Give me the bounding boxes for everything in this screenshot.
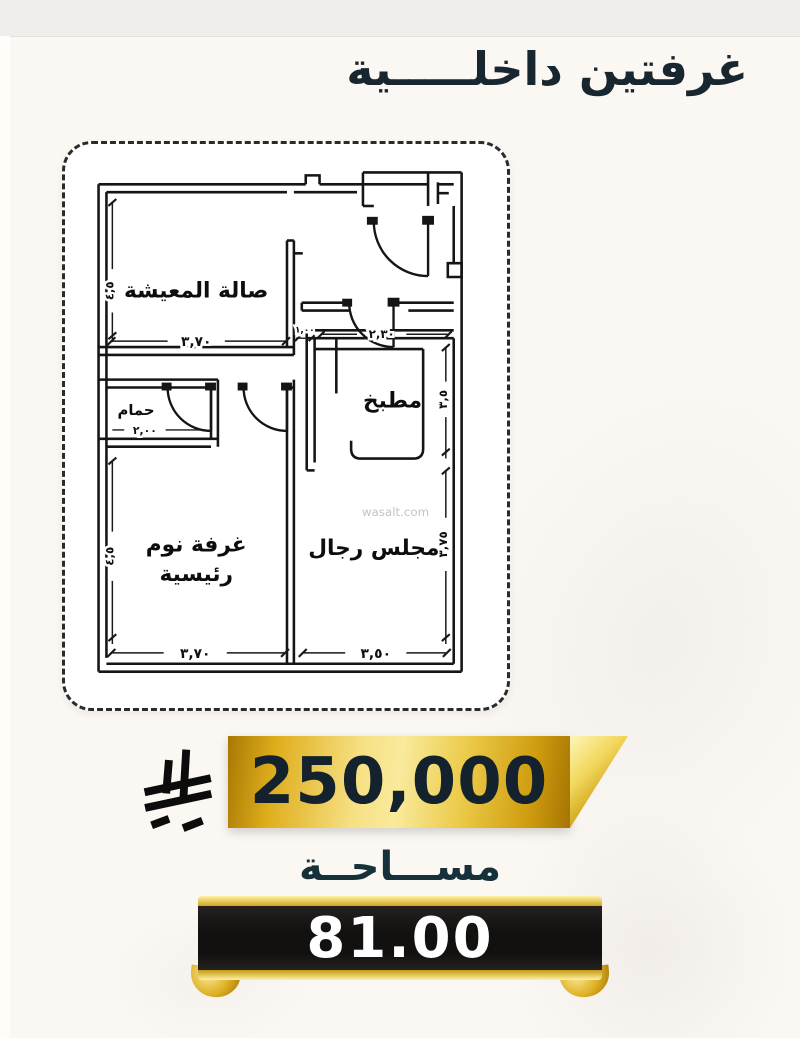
real-estate-flyer: غرفتين داخلـــــية xyxy=(0,0,800,1038)
floor-plan-card: ٣,٧٠ ٤,٥ ١,٠٠ ٢,٣٠ ٣,٥ ٢,٠٠ xyxy=(62,141,510,711)
page-title: غرفتين داخلـــــية xyxy=(346,42,748,96)
banner-gold-edge-bottom xyxy=(198,970,602,980)
price-amount: 250,000 xyxy=(250,745,549,819)
dim-living-height: ٤,٥ xyxy=(102,281,116,300)
majlis-label: مجلس رجال xyxy=(308,536,439,561)
dim-majlis-width: ٣,٥٠ xyxy=(361,646,392,662)
floor-plan-drawing: ٣,٧٠ ٤,٥ ١,٠٠ ٢,٣٠ ٣,٥ ٢,٠٠ xyxy=(65,144,507,708)
area-banner: 81.00 xyxy=(198,896,602,980)
plan-room-labels: صالة المعيشة حمام مطبخ غرفة نوم رئيسية م… xyxy=(118,279,440,587)
dim-kitchen-height: ٣,٥ xyxy=(436,390,450,409)
ribbon-fold-corner xyxy=(570,736,628,828)
area-label: مســـاحــة xyxy=(0,844,800,890)
panel-f-symbol xyxy=(438,182,454,204)
kitchen-label: مطبخ xyxy=(363,388,422,413)
price-ribbon: 250,000 xyxy=(228,736,570,828)
plan-walls xyxy=(99,172,462,671)
bedroom-label-line1: غرفة نوم xyxy=(146,532,247,557)
dim-kitchen-width: ٢,٣٠ xyxy=(369,327,395,341)
bedroom-label-line2: رئيسية xyxy=(159,562,233,587)
area-value: 81.00 xyxy=(306,906,493,971)
saudi-riyal-symbol-icon xyxy=(128,746,228,844)
dim-bedroom-width: ٣,٧٠ xyxy=(180,646,211,662)
dim-bath-width: ٢,٠٠ xyxy=(133,424,157,437)
dim-living-width: ٣,٧٠ xyxy=(181,334,212,350)
bathroom-label: حمام xyxy=(118,402,155,419)
watermark-text: wasalt.com xyxy=(362,505,429,519)
dim-hall-width: ١,٠٠ xyxy=(295,325,315,335)
banner-gold-edge-top xyxy=(198,896,602,906)
living-room-label: صالة المعيشة xyxy=(124,279,268,304)
banner-body: 81.00 xyxy=(198,906,602,970)
top-gray-strip xyxy=(0,0,800,37)
dim-bedroom-height: ٤,٥ xyxy=(102,547,116,566)
